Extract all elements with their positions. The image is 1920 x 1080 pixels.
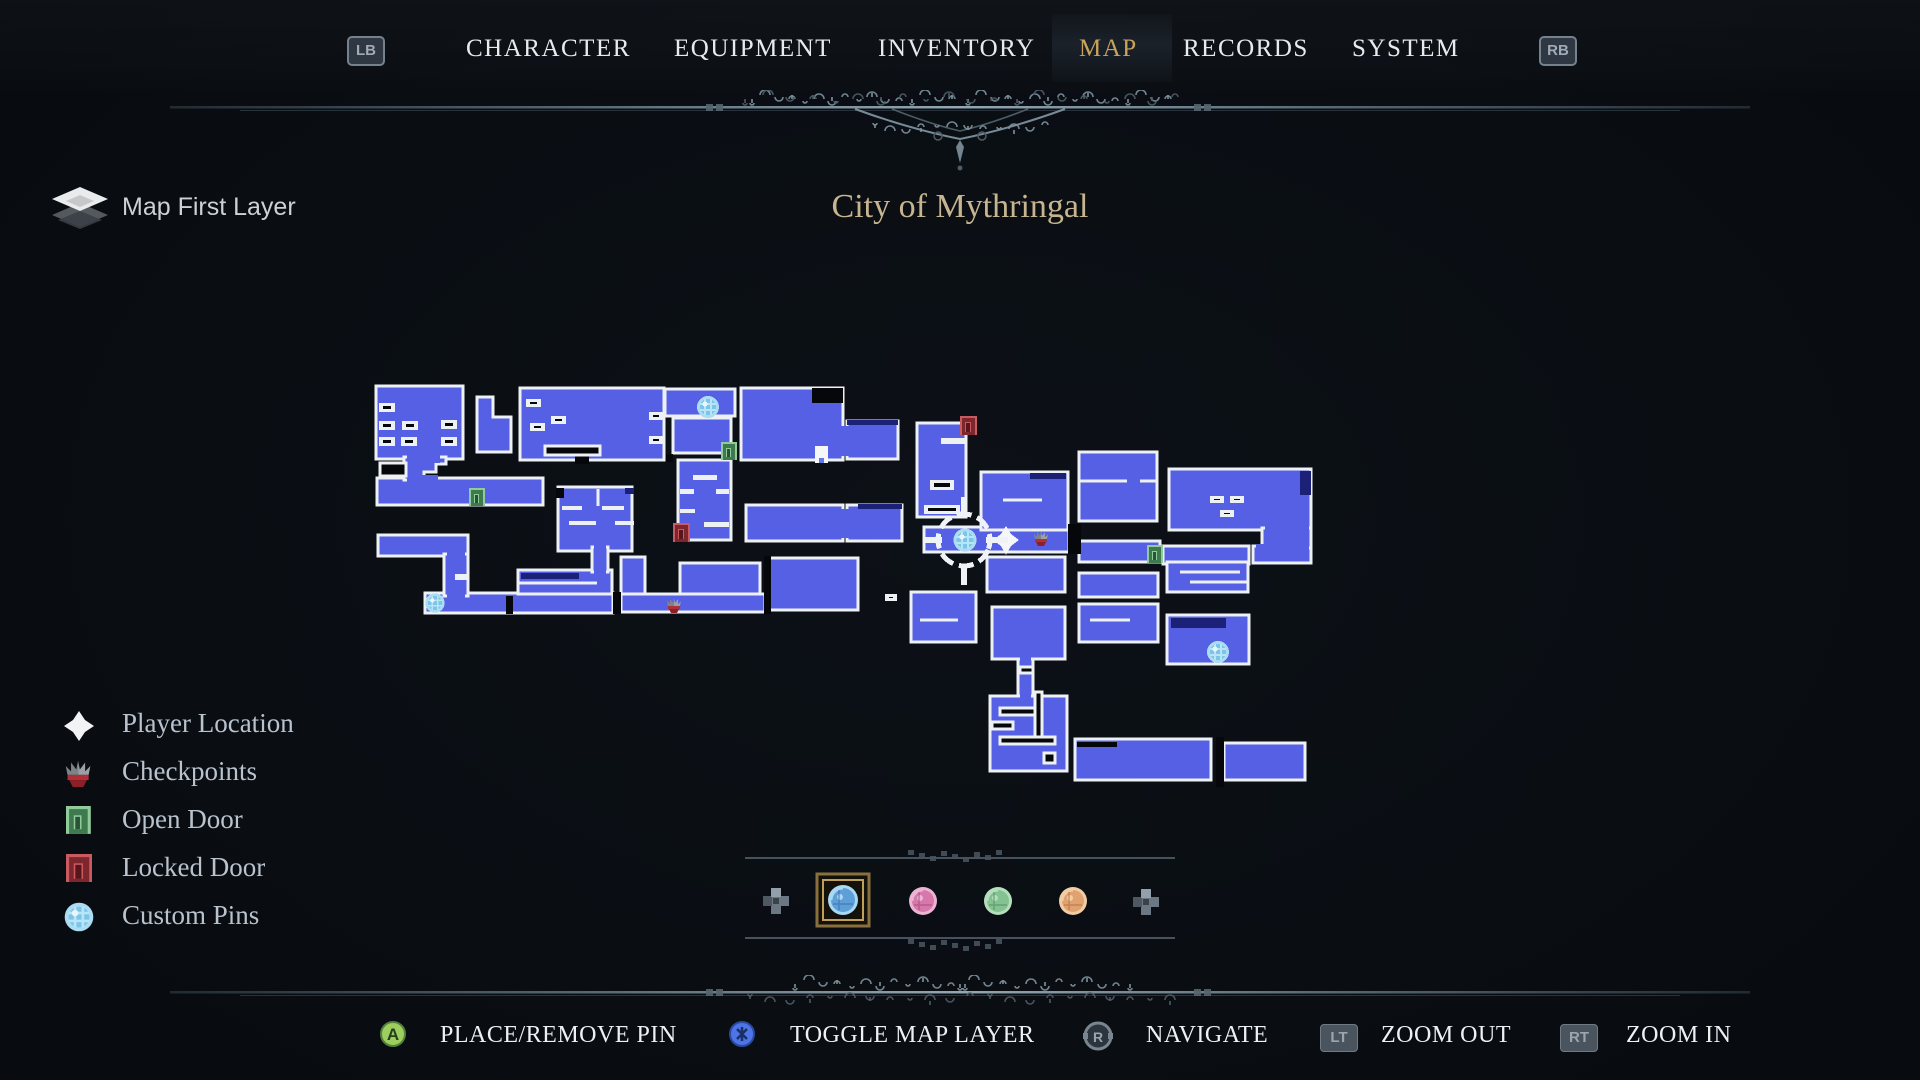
svg-text:R: R xyxy=(1093,1029,1103,1045)
svg-text:A: A xyxy=(387,1025,399,1044)
